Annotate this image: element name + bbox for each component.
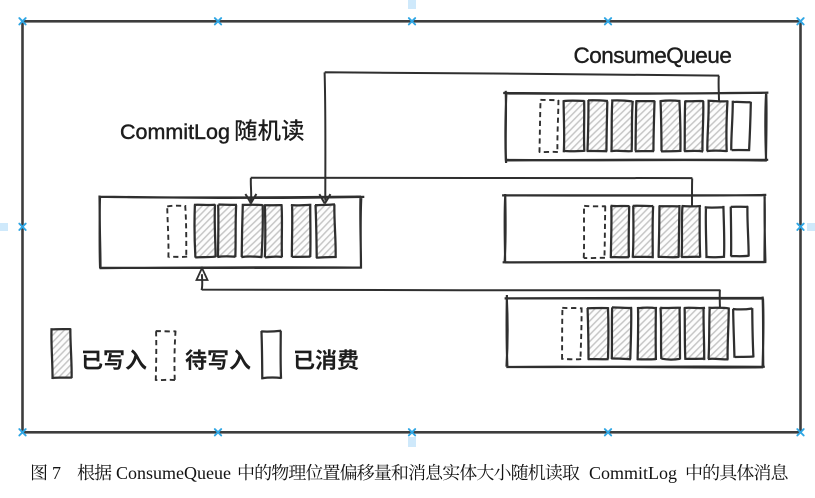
svg-text:CommitLog: CommitLog xyxy=(120,120,230,144)
svg-text:CommitLog: CommitLog xyxy=(589,463,677,483)
svg-text:ConsumeQueue: ConsumeQueue xyxy=(574,43,732,68)
svg-text:ConsumeQueue: ConsumeQueue xyxy=(116,463,231,483)
svg-text:7: 7 xyxy=(52,463,61,483)
